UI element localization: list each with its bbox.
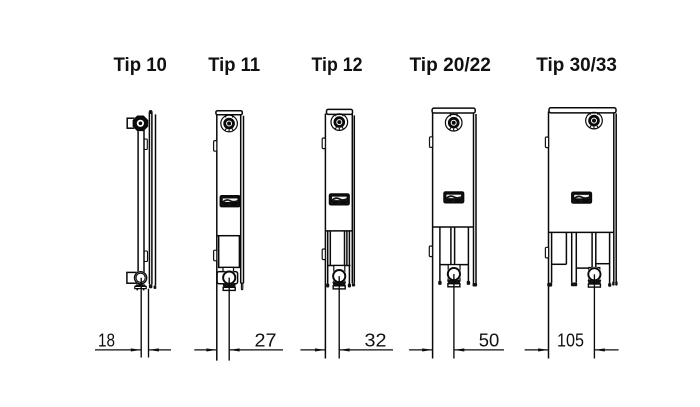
svg-text:105: 105 (557, 331, 584, 351)
svg-text:18: 18 (98, 331, 115, 351)
svg-text:Tip 11: Tip 11 (208, 54, 260, 76)
svg-text:Tip 12: Tip 12 (312, 54, 363, 76)
svg-text:32: 32 (365, 331, 387, 351)
svg-text:Tip 10: Tip 10 (114, 54, 168, 76)
svg-text:Tip 30/33: Tip 30/33 (536, 54, 617, 76)
svg-text:Tip 20/22: Tip 20/22 (409, 54, 491, 76)
svg-text:50: 50 (479, 331, 500, 351)
svg-text:27: 27 (255, 331, 277, 351)
